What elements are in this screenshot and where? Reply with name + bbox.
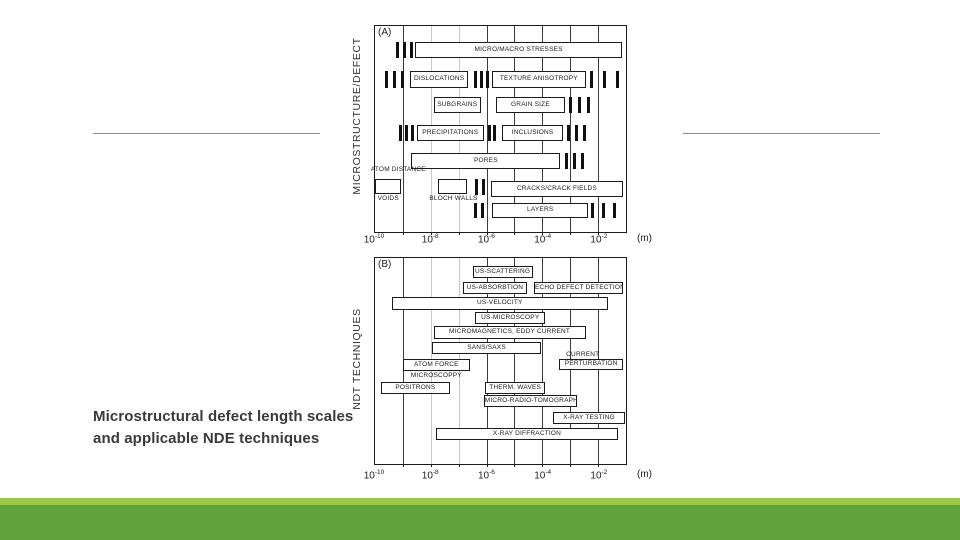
- axis-tick-label: 10-2: [590, 469, 607, 481]
- bar-micro-macro-stresses: MICRO/MACRO STRESSES: [415, 42, 621, 58]
- fade-ticks: [396, 42, 413, 58]
- fade-tick-bar: [411, 125, 414, 141]
- fade-tick-bar: [401, 71, 404, 88]
- axis-tick-label: 10-6: [478, 233, 495, 245]
- bar-us-microscopy: US-MICROSCOPY: [475, 312, 545, 324]
- fade-tick-bar: [565, 153, 568, 169]
- label-bloch-walls: BLOCH WALLS: [429, 195, 475, 205]
- fade-tick-bar: [587, 97, 590, 113]
- fade-ticks: [569, 97, 590, 113]
- footer-light-green-bar: [0, 498, 960, 505]
- bar-unlabeled: [438, 179, 467, 194]
- chart-b-plot: (B) US-SCATTERINGUS-ABSORBTIONECHO DEFEC…: [374, 257, 627, 465]
- fade-tick-bar: [602, 203, 605, 218]
- fade-tick-bar: [480, 71, 483, 88]
- fade-tick-bar: [399, 125, 402, 141]
- fade-tick-bar: [481, 203, 484, 218]
- axis-tick-mark: [403, 464, 404, 467]
- fade-tick-bar: [573, 153, 576, 169]
- bar-atom-force: ATOM FORCE: [403, 359, 470, 371]
- fade-ticks: [399, 125, 414, 141]
- chart-b-unit-label: (m): [637, 469, 652, 480]
- fade-tick-bar: [575, 125, 578, 141]
- bar-unlabeled: [375, 179, 401, 194]
- bar-x-ray-testing: X-RAY TESTING: [553, 412, 624, 424]
- axis-tick-mark: [459, 464, 460, 467]
- chart-b-x-axis: 10-1010-810-610-410-2: [374, 469, 627, 483]
- fade-tick-bar: [578, 97, 581, 113]
- fade-ticks: [475, 179, 485, 195]
- bar-therm-waves: THERM. WAVES: [485, 382, 545, 394]
- fade-tick-bar: [410, 42, 413, 58]
- fade-tick-bar: [405, 125, 408, 141]
- fade-tick-bar: [603, 71, 606, 88]
- fade-tick-bar: [393, 71, 396, 88]
- fade-tick-bar: [616, 71, 619, 88]
- bar-micromagnetics-eddy-current: MICROMAGNETICS, EDDY CURRENT: [434, 326, 586, 339]
- fade-tick-bar: [475, 179, 478, 195]
- fade-ticks: [565, 153, 585, 169]
- label-microscoppy: MICROSCOPPY: [403, 372, 470, 381]
- bar-x-ray-diffraction: X-RAY DIFFRACTION: [436, 428, 617, 440]
- caption-line-2: and applicable NDE techniques: [93, 428, 353, 450]
- fade-tick-bar: [590, 71, 593, 88]
- bar-texture-anisotropy: TEXTURE ANISOTROPY: [492, 71, 585, 88]
- slide: MICROSTRUCTURE/DEFECT (A) MICRO/MACRO ST…: [0, 0, 960, 540]
- chart-a-axis-title: MICROSTRUCTURE/DEFECT: [351, 16, 363, 216]
- chart-a-corner-label: (A): [378, 27, 391, 38]
- axis-tick-label: 10-4: [534, 469, 551, 481]
- axis-tick-mark: [487, 464, 488, 467]
- bar-dislocations: DISLOCATIONS: [410, 71, 469, 88]
- bar-sans-saxs: SANS/SAXS: [432, 342, 541, 354]
- fade-tick-bar: [493, 125, 496, 141]
- bar-inclusions: INCLUSIONS: [502, 125, 563, 141]
- bar-us-absorbtion: US-ABSORBTION: [463, 282, 527, 294]
- chart-a-x-axis: 10-1010-810-610-410-2: [374, 233, 627, 247]
- axis-tick-label: 10-6: [478, 469, 495, 481]
- bar-micro-radio-tomography: MICRO-RADIO-TOMOGRAPHY: [484, 395, 577, 407]
- label-voids: VOIDS: [375, 195, 401, 205]
- fade-tick-bar: [474, 71, 477, 88]
- fade-tick-bar: [567, 125, 570, 141]
- fade-ticks: [567, 125, 585, 141]
- bar-us-scattering: US-SCATTERING: [473, 266, 533, 278]
- axis-tick-label: 10-8: [422, 233, 439, 245]
- fade-ticks: [385, 71, 405, 88]
- axis-tick-mark: [598, 464, 599, 467]
- axis-tick-label: 10-8: [422, 469, 439, 481]
- bar-grain-size: GRAIN SIZE: [496, 97, 564, 113]
- fade-ticks: [474, 71, 489, 88]
- fade-tick-bar: [482, 179, 485, 195]
- fade-ticks: [591, 203, 616, 218]
- axis-tick-mark: [570, 464, 571, 467]
- bar-layers: LAYERS: [492, 203, 588, 218]
- chart-a-plot: (A) MICRO/MACRO STRESSESDISLOCATIONSTEXT…: [374, 25, 627, 233]
- fade-ticks: [474, 203, 484, 218]
- fade-tick-bar: [403, 42, 406, 58]
- axis-tick-label: 10-10: [364, 233, 385, 245]
- slide-caption: Microstructural defect length scales and…: [93, 406, 353, 450]
- fade-tick-bar: [474, 203, 477, 218]
- fade-tick-bar: [591, 203, 594, 218]
- chart-b-corner-label: (B): [378, 259, 391, 270]
- bar-us-velocity: US-VELOCITY: [392, 297, 608, 310]
- axis-tick-label: 10-2: [590, 233, 607, 245]
- right-divider-line: [683, 133, 880, 134]
- footer-dark-green-bar: [0, 505, 960, 540]
- bar-positrons: POSITRONS: [381, 382, 451, 394]
- fade-tick-bar: [581, 153, 584, 169]
- fade-tick-bar: [488, 125, 491, 141]
- fade-tick-bar: [583, 125, 586, 141]
- fade-tick-bar: [486, 71, 489, 88]
- bar-cracks-crack-fields: CRACKS/CRACK FIELDS: [491, 181, 623, 197]
- fade-tick-bar: [385, 71, 388, 88]
- fade-ticks: [488, 125, 496, 141]
- bar-subgrains: SUBGRAINS: [434, 97, 481, 113]
- caption-line-1: Microstructural defect length scales: [93, 406, 353, 428]
- axis-tick-label: 10-4: [534, 233, 551, 245]
- axis-tick-mark: [514, 464, 515, 467]
- bar-perturbation: PERTURBATION: [559, 359, 623, 370]
- label-atom-distance: ATOM DISTANCE: [371, 166, 459, 177]
- fade-tick-bar: [613, 203, 616, 218]
- fade-ticks: [590, 71, 619, 88]
- fade-tick-bar: [569, 97, 572, 113]
- bar-precipitations: PRECIPITATIONS: [417, 125, 484, 141]
- left-divider-line: [93, 133, 320, 134]
- bar-echo-defect-detection: ECHO DEFECT DETECTION: [534, 282, 623, 294]
- chart-a-unit-label: (m): [637, 233, 652, 244]
- axis-tick-mark: [542, 464, 543, 467]
- axis-tick-label: 10-10: [364, 469, 385, 481]
- fade-tick-bar: [396, 42, 399, 58]
- axis-tick-mark: [431, 464, 432, 467]
